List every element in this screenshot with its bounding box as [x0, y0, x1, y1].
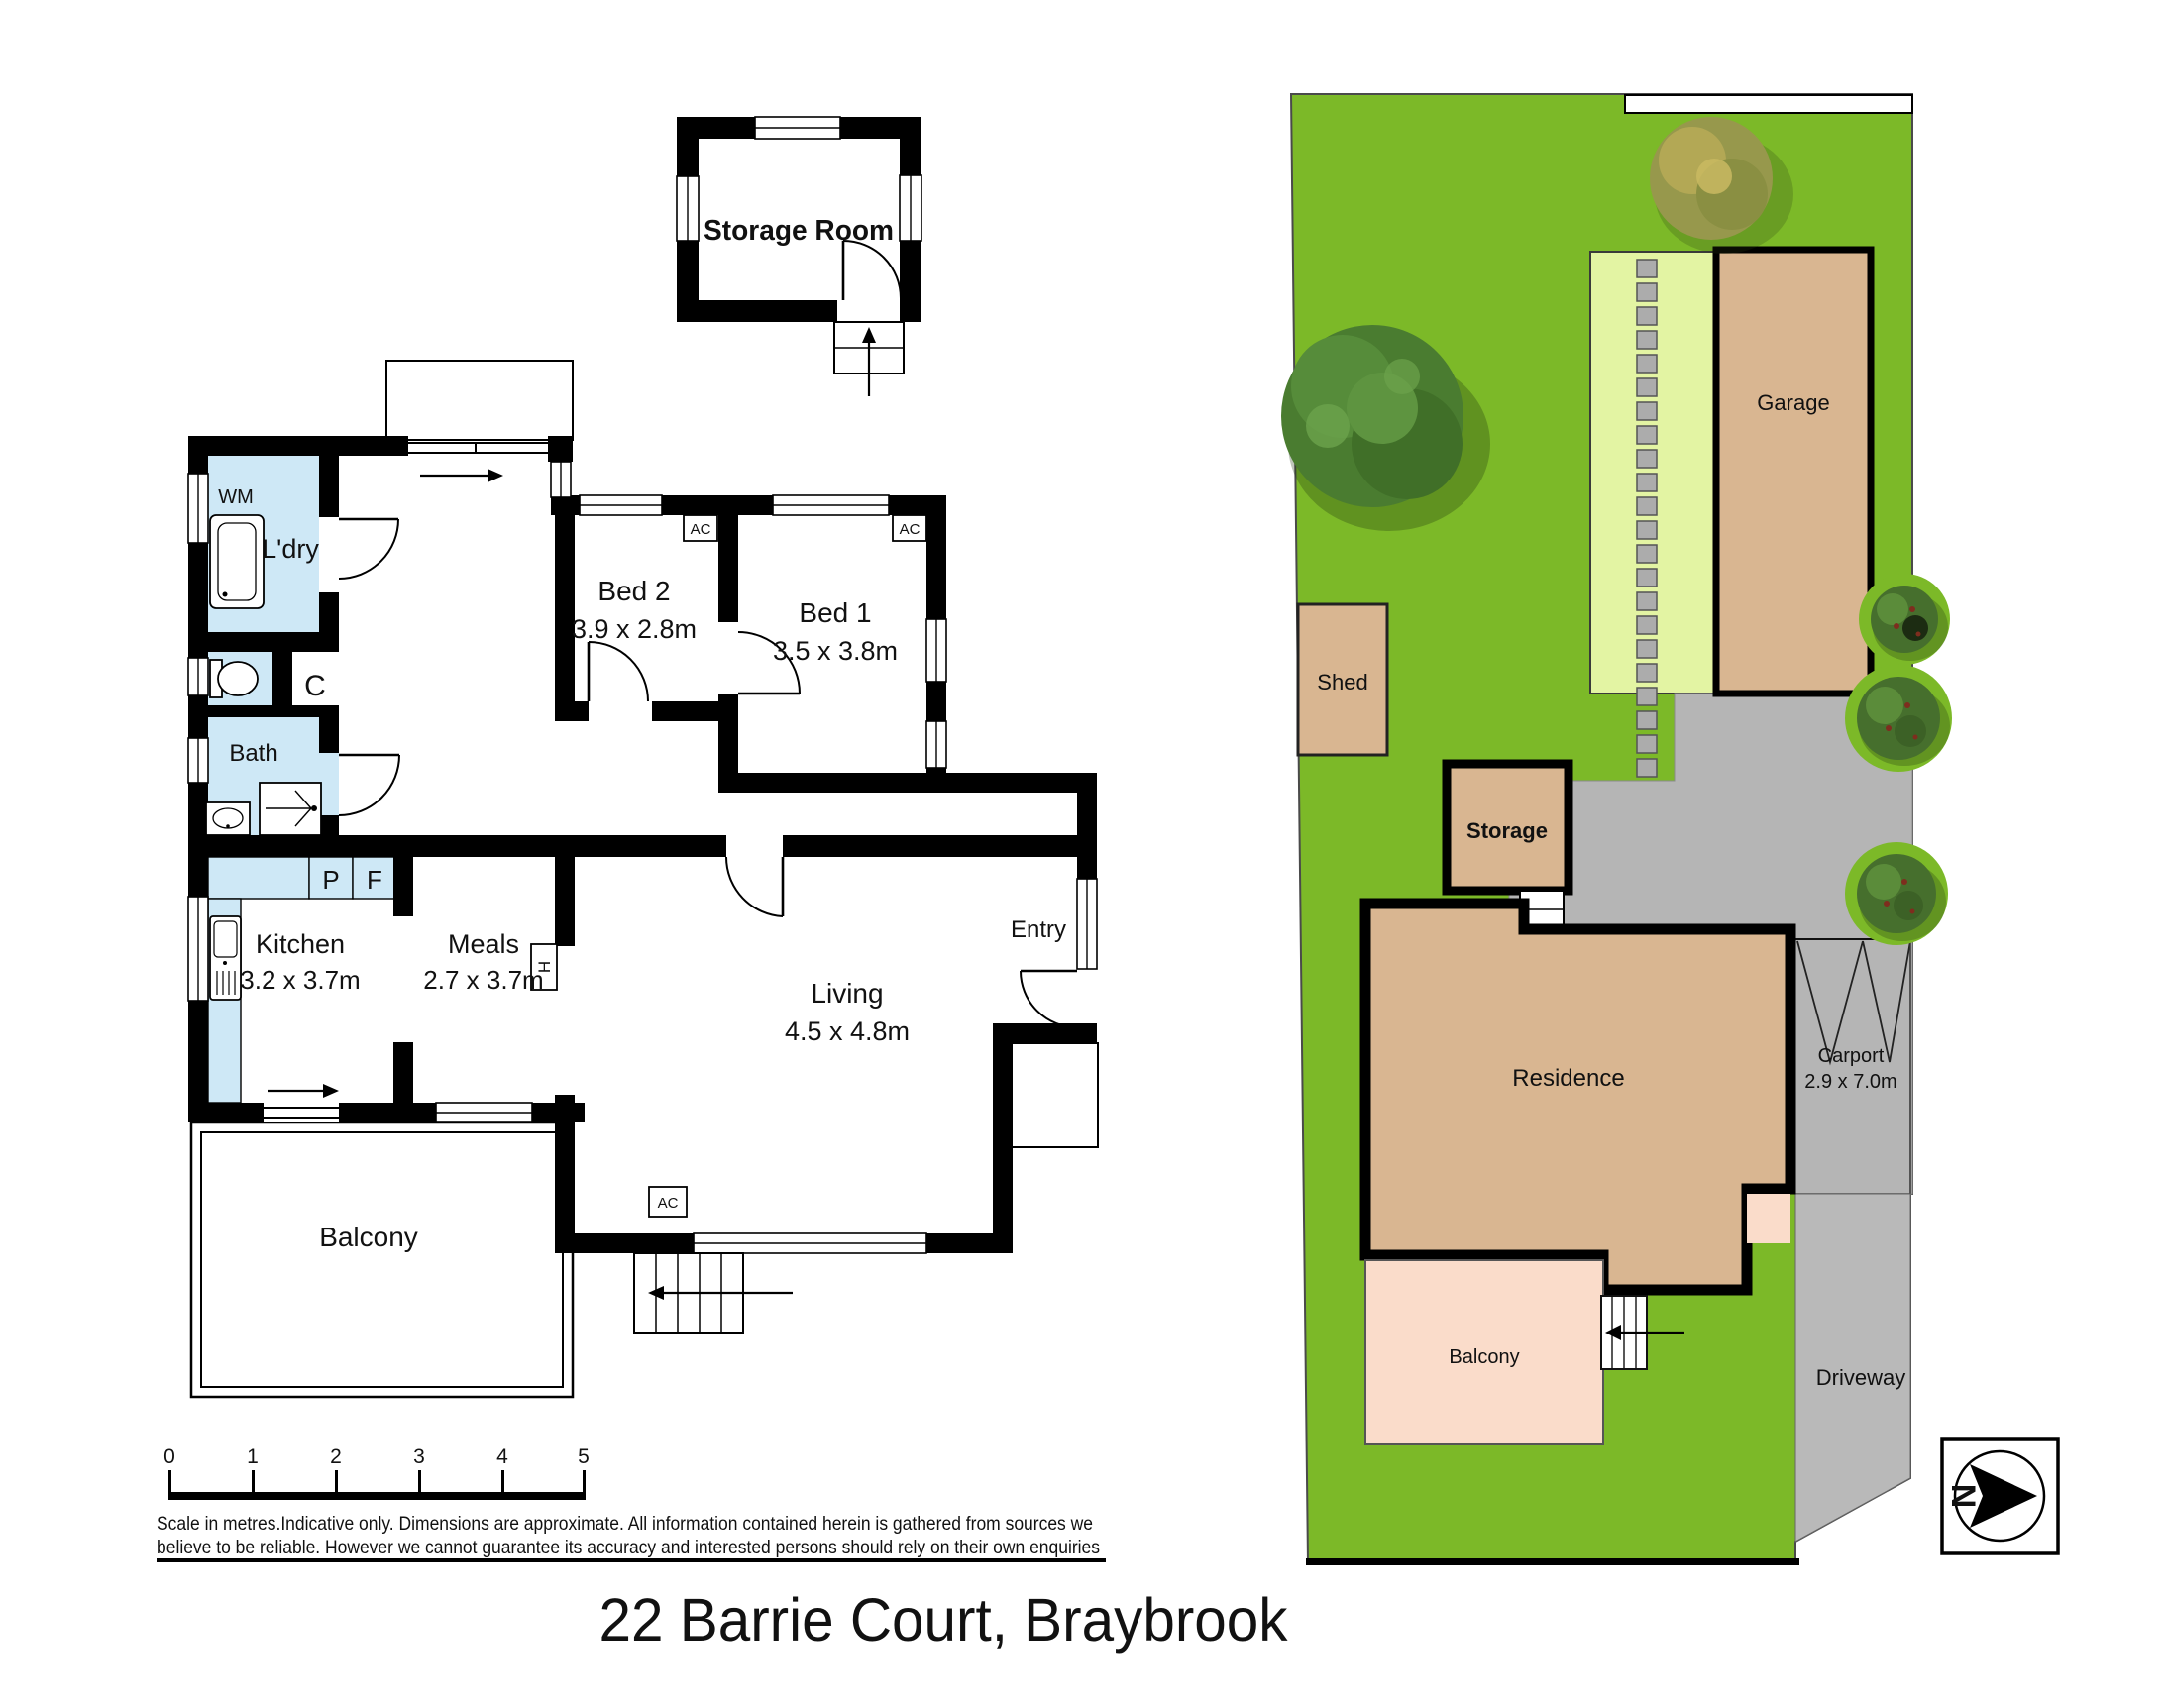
scale-tick-label: 0: [163, 1445, 175, 1468]
ac-label: AC: [658, 1195, 679, 1212]
balcony-deck: [191, 1122, 573, 1397]
shower-icon: [260, 783, 321, 835]
disclaimer-line1: Scale in metres.Indicative only. Dimensi…: [157, 1513, 1093, 1535]
storage-room-label: Storage Room: [704, 215, 894, 247]
carport-dims: 2.9 x 7.0m: [1804, 1071, 1896, 1093]
scale-tick-label: 2: [330, 1445, 342, 1468]
scale-tick-label: 3: [413, 1445, 425, 1468]
ac-unit: AC: [893, 515, 926, 541]
residence-building: [1365, 904, 1790, 1290]
scale-tick-label: 4: [496, 1445, 508, 1468]
ac-label: AC: [900, 521, 921, 538]
kitchen-label: Kitchen: [256, 929, 345, 959]
bath-label: Bath: [229, 740, 277, 767]
residence-rear-landing: [1747, 1194, 1790, 1243]
cupboard-label: C: [304, 670, 326, 702]
plan-canvas: Garage Shed Storage Residence Carport 2.…: [0, 0, 2167, 1708]
garage-label: Garage: [1757, 390, 1829, 415]
scale-bar: 0 1 2 3 4 5: [163, 1445, 590, 1500]
stepping-stones-path: [1637, 260, 1657, 848]
fence-strip: [1625, 95, 1912, 113]
compass-north-label: N: [1944, 1484, 1982, 1509]
residence-label: Residence: [1512, 1065, 1624, 1092]
ac-unit: AC: [684, 515, 717, 541]
page-title: 22 Barrie Court, Braybrook: [599, 1586, 1288, 1654]
living-label: Living: [811, 978, 883, 1009]
storage-room: Storage Room: [677, 117, 921, 396]
scale-tick-label: 1: [247, 1445, 259, 1468]
basin-icon: [206, 802, 250, 835]
storage-building-label: Storage: [1466, 818, 1548, 843]
site-bottom-boundary: [1306, 1558, 1799, 1565]
bed2-dims: 3.9 x 2.8m: [572, 614, 697, 644]
garage-building: [1716, 250, 1871, 694]
disclaimer-rule: [157, 1558, 1106, 1562]
stairs: [634, 1253, 793, 1333]
bed2-label: Bed 2: [597, 576, 670, 606]
meals-dims: 2.7 x 3.7m: [423, 965, 543, 995]
living-dims: 4.5 x 4.8m: [785, 1016, 910, 1046]
meals-label: Meals: [448, 929, 519, 959]
driveway-label: Driveway: [1816, 1365, 1905, 1390]
scale-tick-label: 5: [578, 1445, 590, 1468]
floorplan-page: Garage Shed Storage Residence Carport 2.…: [0, 0, 2167, 1708]
ac-label: AC: [691, 521, 711, 538]
pantry-label: P: [322, 865, 339, 895]
site-plan: Garage Shed Storage Residence Carport 2.…: [1281, 94, 2058, 1565]
ac-unit: AC: [649, 1187, 687, 1217]
carport-label: Carport: [1818, 1045, 1885, 1067]
entry-label: Entry: [1011, 916, 1066, 943]
bed1-label: Bed 1: [799, 597, 871, 628]
rear-porch: [386, 361, 573, 440]
site-balcony-label: Balcony: [1449, 1346, 1519, 1368]
entry-porch: [1011, 1043, 1098, 1147]
disclaimer: Scale in metres.Indicative only. Dimensi…: [157, 1513, 1106, 1562]
kitchen-bench-top: [208, 857, 309, 899]
shed-label: Shed: [1317, 670, 1367, 694]
ldry-label: L'dry: [262, 534, 319, 564]
fridge-label: F: [367, 865, 382, 895]
bed1-dims: 3.5 x 3.8m: [773, 636, 898, 666]
kitchen-dims: 3.2 x 3.7m: [240, 965, 360, 995]
toilet-icon: [210, 660, 258, 697]
compass: N: [1942, 1439, 2058, 1553]
kitchen-sink-icon: [210, 916, 241, 1000]
floor-plan: Storage Room: [188, 117, 1098, 1397]
disclaimer-line2: believe to be reliable. However we canno…: [157, 1537, 1100, 1558]
balcony-label: Balcony: [319, 1222, 418, 1252]
wm-label: WM: [218, 486, 254, 508]
washing-machine-icon: [210, 515, 264, 608]
